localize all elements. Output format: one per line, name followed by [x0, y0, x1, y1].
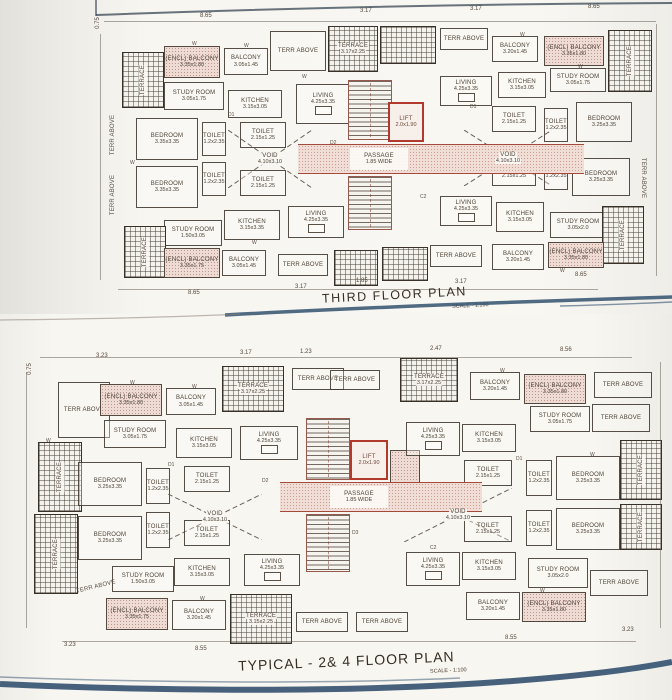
- room-toilet-small-upper-right: TOILET1.2x2.35: [526, 460, 552, 496]
- room-passage-band: [298, 144, 584, 174]
- opening-mark: W: [252, 240, 257, 246]
- opening-mark: W: [46, 438, 51, 444]
- room-kitchen-lower-right: KITCHEN3.15x3.05: [462, 552, 516, 580]
- opening-mark: D1: [516, 456, 522, 462]
- dimension-line: [62, 641, 636, 642]
- room-study-room-top-right: STUDY ROOM3.05x1.75: [530, 406, 590, 432]
- room-kitchen-upper-right: KITCHEN3.15x3.05: [462, 424, 516, 452]
- room-balcony-top-right: BALCONY3.20x1.45: [470, 372, 520, 400]
- room-tag-box: [261, 445, 278, 454]
- room-balcony-bottom-left: BALCONY3.20x1.45: [172, 600, 226, 630]
- room-toilet-small-lower-right: TOILET1.2x2.35: [526, 510, 552, 546]
- room-lift: LIFT2.0x1.90: [350, 440, 388, 480]
- opening-mark: D1: [228, 112, 234, 118]
- opening-mark: W: [244, 43, 249, 49]
- room-lift: LIFT2.0x1.90: [388, 102, 424, 142]
- room-encl-balcony-top-left: (ENCL) BALCONY3.35x1.80: [100, 384, 162, 416]
- room-bedroom-upper-right: BEDROOM3.25x3.35: [556, 456, 620, 500]
- room-terrace-right-upper: TERRACE: [620, 440, 662, 500]
- room-terrace-left-upper: TERRACE: [38, 442, 82, 512]
- dimension-label: 3.23: [622, 627, 634, 633]
- opening-mark: W: [130, 380, 135, 386]
- dimension-label: 3.17: [470, 6, 482, 12]
- room-staircase-upper: [348, 80, 392, 140]
- room-study-room-top-left: STUDY ROOM3.05x1.75: [104, 420, 166, 448]
- room-toilet-small-lower-left: TOILET1.2x2.35: [146, 512, 170, 548]
- room-terrace-right-lower: TERRACE: [620, 504, 662, 550]
- opening-mark: W: [500, 368, 505, 374]
- dimension-line: [104, 21, 656, 22]
- dimension-line: [656, 24, 657, 276]
- opening-mark: W: [560, 268, 565, 274]
- dimension-line: [660, 362, 661, 628]
- room-terrace-top-center-left: TERRACE3.17x2.25: [222, 366, 284, 412]
- room-balcony-bottom-right: BALCONY3.20x1.45: [466, 592, 520, 620]
- room-terr-above-bottom-right: TERR ABOVE: [590, 570, 648, 596]
- opening-mark: D2: [262, 478, 268, 484]
- room-staircase-lower: [348, 176, 392, 230]
- room-terrace-left-lower: TERRACE: [34, 514, 78, 594]
- room-tag-box: [264, 572, 281, 581]
- opening-mark: W: [540, 588, 545, 594]
- opening-mark: W: [302, 74, 307, 80]
- room-kitchen-lower-left: KITCHEN3.15x3.05: [174, 558, 230, 586]
- dimension-label: 3.23: [64, 642, 76, 648]
- opening-mark: C2: [430, 545, 436, 551]
- dimension-label: 8.65: [588, 4, 600, 10]
- dimension-label: 3.17: [295, 284, 307, 290]
- opening-mark: W: [192, 41, 197, 47]
- dimension-label: 8.65: [200, 13, 212, 19]
- room-encl-balcony-bottom-right: (ENCL) BALCONY3.35x1.80: [522, 592, 586, 622]
- room-toilet-upper-left: TOILET2.15x1.25: [184, 466, 230, 492]
- room-passage-label: PASSAGE1.85 WIDE: [330, 486, 388, 508]
- dimension-label: 8.56: [560, 347, 572, 353]
- room-terr-above-top-right: TERR ABOVE: [594, 372, 652, 398]
- dimension-label: 3.23: [96, 353, 108, 359]
- room-living-upper-right: LIVING4.25x3.35: [406, 422, 460, 456]
- room-terr-above-top-center: TERR ABOVE: [330, 370, 380, 390]
- dimension-label: 8.65: [188, 290, 200, 296]
- opening-mark: D1: [470, 104, 476, 110]
- dimension-line: [26, 372, 27, 628]
- room-passage-label: PASSAGE1.85 WIDE: [350, 148, 408, 170]
- opening-mark: W: [578, 64, 583, 70]
- dimension-label: 8.65: [575, 272, 587, 278]
- dimension-label: 8.55: [505, 635, 517, 641]
- room-tag-box: [425, 571, 442, 580]
- room-living-lower-left: LIVING4.25x3.35: [244, 554, 300, 586]
- dimension-label: 3.17: [240, 350, 252, 356]
- dimension-label: 1.85: [356, 278, 368, 284]
- opening-mark: D2: [330, 140, 336, 146]
- room-toilet-lower-right: TOILET2.15x1.25: [464, 516, 512, 542]
- room-balcony-top-left: BALCONY3.05x1.45: [166, 388, 216, 415]
- room-living-lower-right: LIVING4.25x3.35: [406, 552, 460, 586]
- opening-mark: D1: [168, 462, 174, 468]
- dimension-label: 3.17: [360, 8, 372, 14]
- dimension-label: 0.75: [27, 363, 33, 375]
- room-bedroom-upper-left: BEDROOM3.25x3.35: [78, 462, 142, 506]
- room-encl-balcony-top-right: (ENCL) BALCONY3.35x1.80: [524, 374, 586, 404]
- dimension-label: 1.23: [300, 349, 312, 355]
- room-tag-box: [425, 441, 442, 450]
- opening-mark: W: [200, 596, 205, 602]
- dimension-label: 8.55: [195, 646, 207, 652]
- room-staircase-upper: [306, 418, 350, 480]
- opening-mark: W: [130, 160, 135, 166]
- room-encl-balcony-bottom-left: (ENCL) BALCONY3.35x1.75: [106, 598, 168, 630]
- opening-mark: W: [590, 452, 595, 458]
- opening-mark: C2: [420, 194, 426, 200]
- room-terr-above-bottom-center: TERR ABOVE: [356, 612, 408, 632]
- room-study-room-lower-right: STUDY ROOM3.05x2.0: [528, 558, 588, 588]
- room-living-upper-left: LIVING4.25x3.35: [240, 426, 298, 460]
- room-toilet-small-upper-left: TOILET1.2x2.35: [146, 468, 170, 504]
- room-staircase-lower: [306, 514, 350, 572]
- room-bedroom-lower-left: BEDROOM3.25x3.35: [78, 516, 142, 560]
- opening-mark: W: [520, 32, 525, 38]
- dimension-line: [100, 34, 101, 280]
- dimension-label: 0.75: [95, 17, 101, 29]
- room-terrace-bottom-left: TERRACE3.15x2.25: [230, 594, 292, 644]
- opening-mark: W: [192, 384, 197, 390]
- room-kitchen-upper-left: KITCHEN3.15x3.05: [176, 428, 232, 458]
- room-bedroom-lower-right: BEDROOM3.25x3.35: [556, 508, 620, 550]
- dimension-line: [40, 357, 632, 358]
- room-toilet-lower-left: TOILET2.15x1.25: [184, 520, 230, 546]
- dimension-label: 2.47: [430, 346, 442, 352]
- room-terr-above-bottom-left: TERR ABOVE: [296, 612, 348, 632]
- opening-mark: D3: [352, 530, 358, 536]
- room-terr-above-right: TERR ABOVE: [592, 404, 650, 432]
- room-terrace-top-center-right: TERRACE3.17x2.25: [400, 358, 458, 402]
